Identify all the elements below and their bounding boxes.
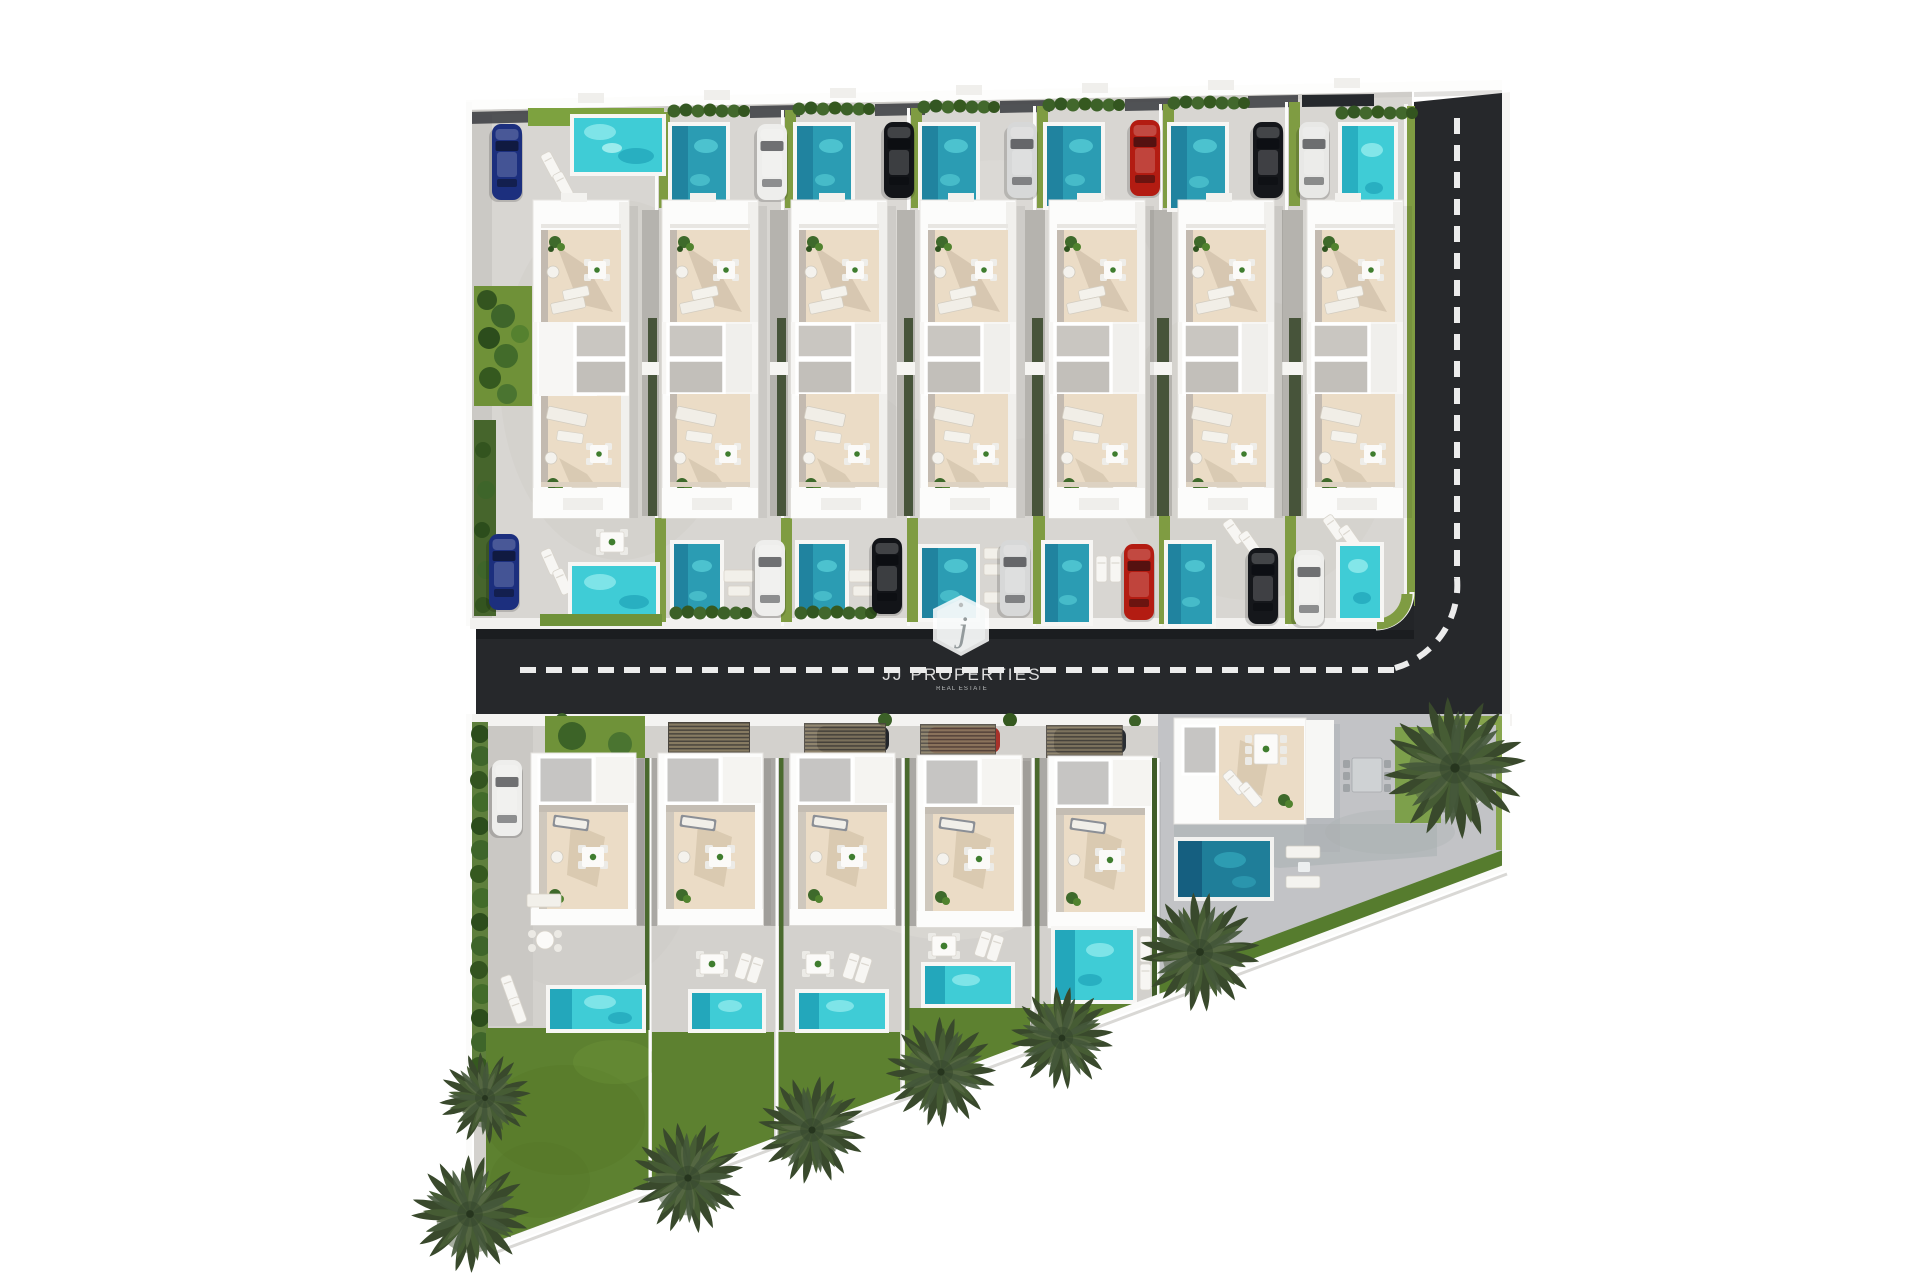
svg-text:JJ PROPERTIES: JJ PROPERTIES: [882, 665, 1042, 684]
svg-text:REAL ESTATE: REAL ESTATE: [936, 686, 988, 692]
